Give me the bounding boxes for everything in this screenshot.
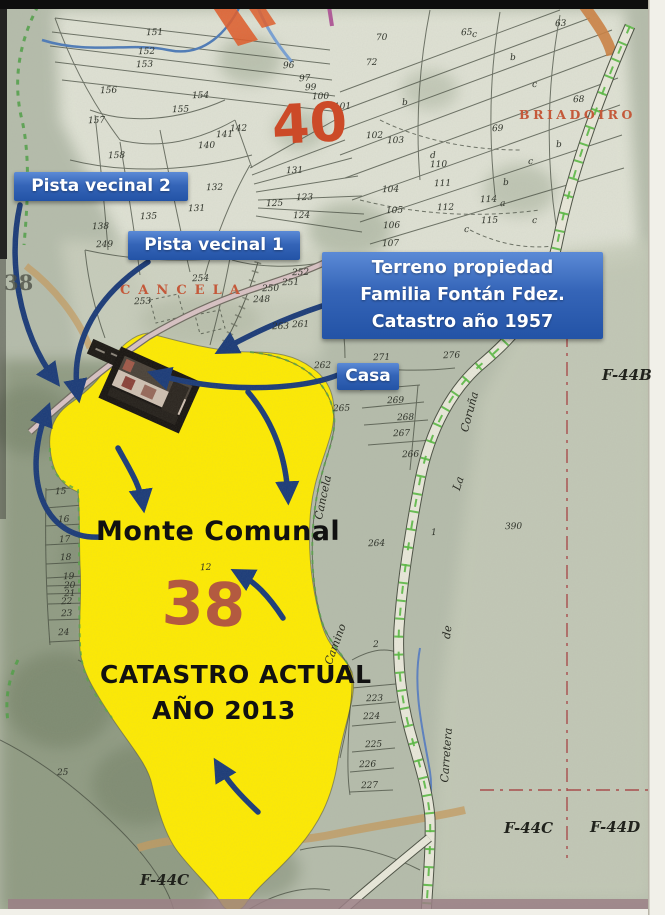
scan-edges	[0, 0, 665, 915]
scanned-cadastral-map: 1511521531561541551571581401411429697991…	[0, 0, 665, 915]
map-artwork	[0, 0, 665, 915]
